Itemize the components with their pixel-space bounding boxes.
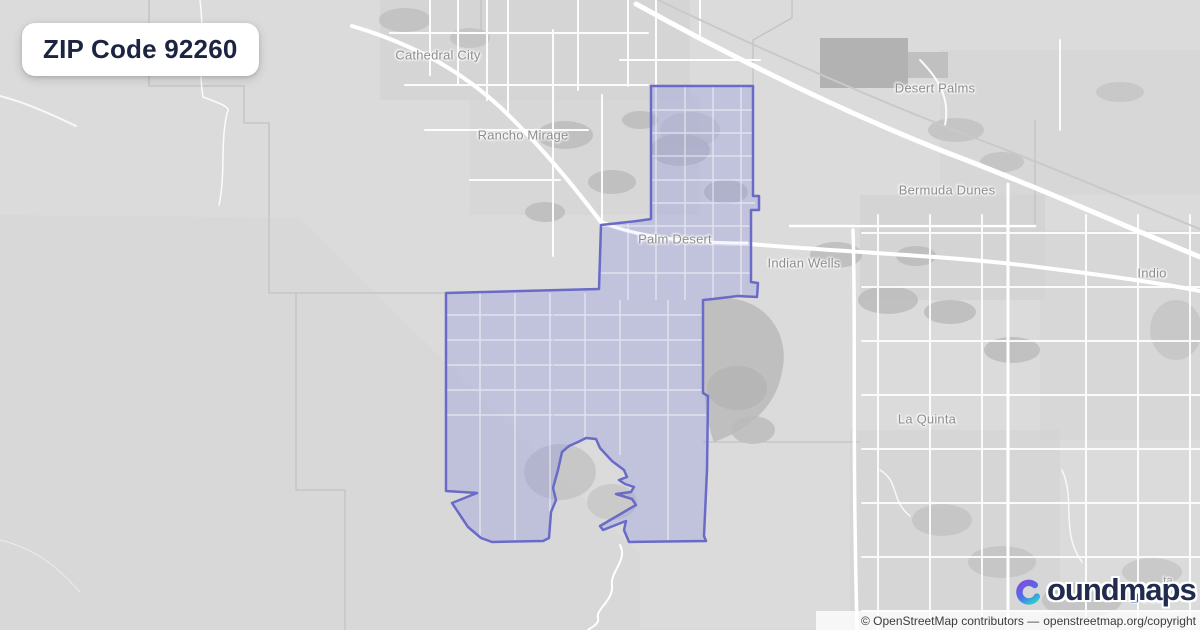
attribution-text: © OpenStreetMap contributors — <box>861 614 1039 628</box>
map-label-desert-palms: Desert Palms <box>895 81 975 96</box>
map-label-palm-desert: Palm Desert <box>638 232 712 247</box>
attribution-bar: © OpenStreetMap contributors — openstree… <box>816 611 1200 630</box>
map-label-bermuda-dunes: Bermuda Dunes <box>899 183 996 198</box>
boundmaps-wordmark: oundmaps <box>1047 574 1196 611</box>
zip-code-badge-text: ZIP Code 92260 <box>43 34 238 64</box>
map-label-rancho-mirage: Rancho Mirage <box>478 128 569 143</box>
copyright-link[interactable]: openstreetmap.org/copyright <box>1043 614 1196 628</box>
map-label-cathedral-city: Cathedral City <box>395 48 480 63</box>
boundmaps-logo-icon <box>1012 575 1046 611</box>
map-label-indian-wells: Indian Wells <box>768 256 841 271</box>
zip-code-badge: ZIP Code 92260 <box>22 23 259 76</box>
map-label-la-quinta: La Quinta <box>898 412 956 427</box>
map-label-indio: Indio <box>1137 266 1166 281</box>
map-share-image: Cathedral City Rancho Mirage Desert Palm… <box>0 0 1200 630</box>
map-canvas[interactable] <box>0 0 1200 630</box>
boundmaps-logo[interactable]: oundmaps <box>1012 574 1196 611</box>
